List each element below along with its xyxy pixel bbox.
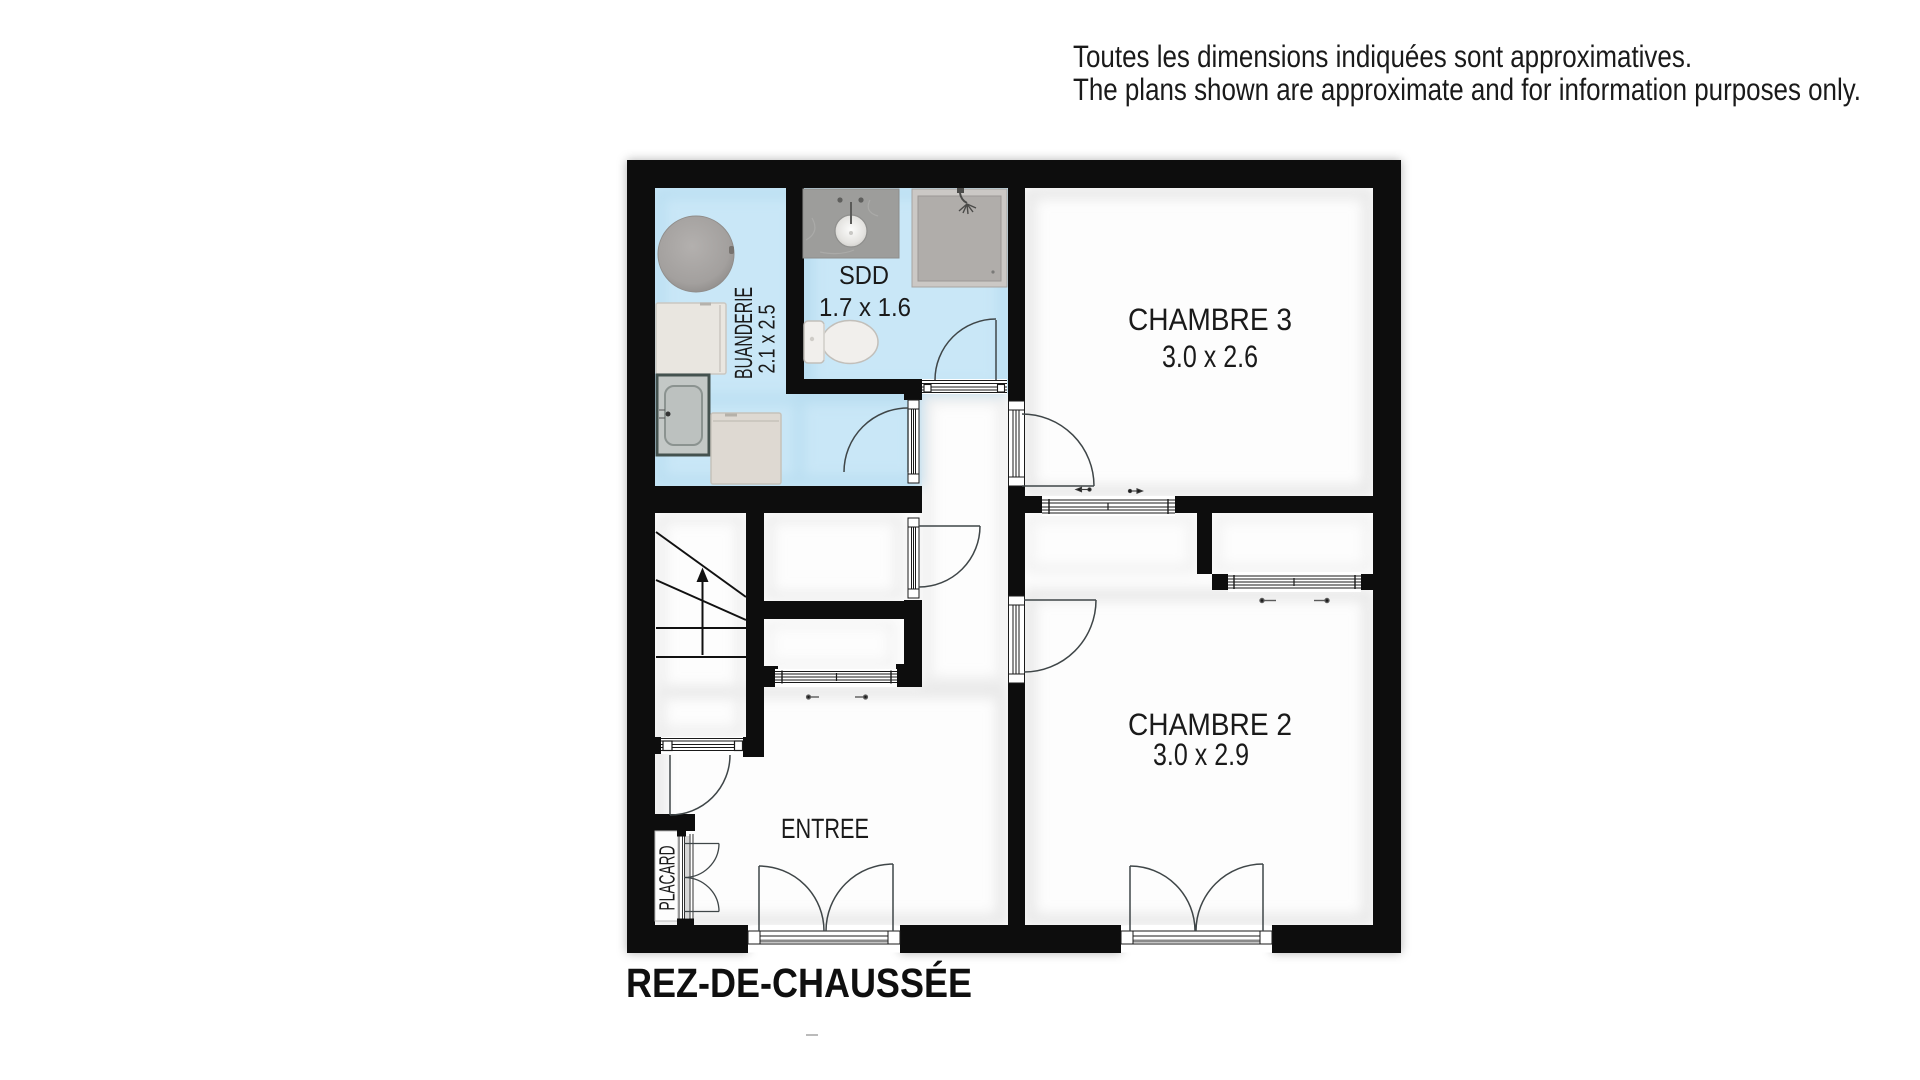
svg-text:3.0 x 2.6: 3.0 x 2.6 <box>1162 339 1258 374</box>
svg-text:The plans shown are approximat: The plans shown are approximate and for … <box>1073 72 1861 107</box>
svg-text:Toutes les dimensions indiquée: Toutes les dimensions indiquées sont app… <box>1073 39 1692 74</box>
svg-text:2.1 x 2.5: 2.1 x 2.5 <box>753 304 779 373</box>
svg-text:ENTREE: ENTREE <box>781 813 869 844</box>
svg-text:1.7 x 1.6: 1.7 x 1.6 <box>819 292 911 322</box>
svg-text:SDD: SDD <box>839 260 889 290</box>
svg-text:CHAMBRE 3: CHAMBRE 3 <box>1128 302 1292 337</box>
svg-text:REZ-DE-CHAUSSÉE: REZ-DE-CHAUSSÉE <box>626 960 972 1006</box>
svg-text:3.0 x 2.9: 3.0 x 2.9 <box>1153 737 1249 772</box>
svg-text:PLACARD: PLACARD <box>655 845 680 910</box>
